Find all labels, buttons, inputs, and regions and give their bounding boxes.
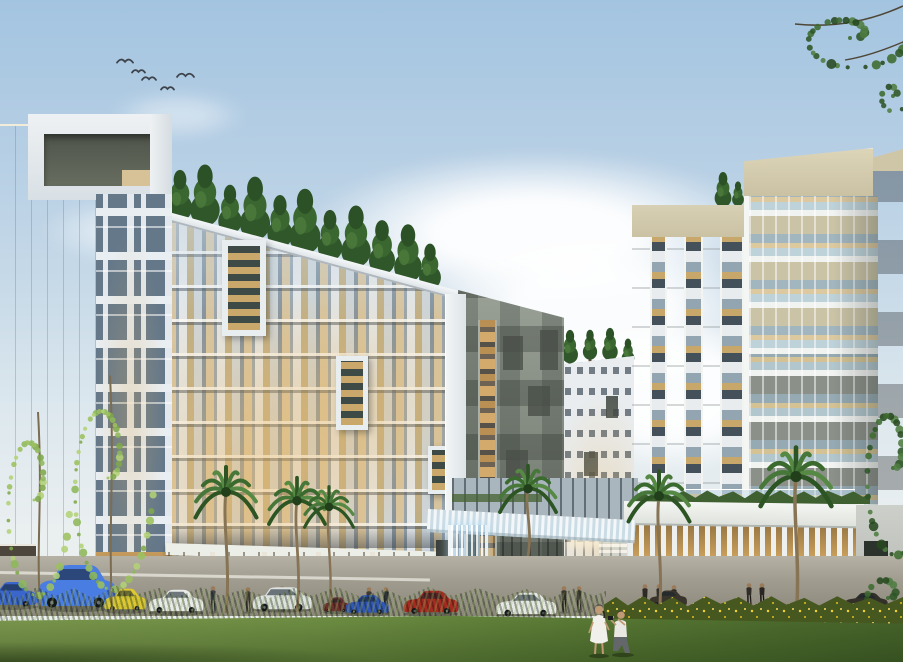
window-strip: [650, 237, 667, 510]
branch: [795, 6, 903, 25]
bird: [132, 70, 145, 72]
bird: [177, 74, 194, 77]
architectural-rendering: [0, 0, 903, 662]
branch-foliage: [806, 17, 903, 70]
bird: [161, 87, 174, 89]
bird: [142, 77, 156, 80]
podium-planter: [452, 494, 542, 502]
window-warm-glow: [96, 194, 172, 560]
dark-panel: [503, 336, 523, 370]
window-strip: [684, 237, 703, 510]
crown-lit-soffit: [122, 170, 152, 186]
branch: [845, 42, 903, 60]
facade-glow: [168, 216, 464, 560]
rooftop-conifer: [562, 330, 578, 366]
rooftop-conifer: [583, 330, 597, 362]
facade-frame-box: [222, 240, 266, 336]
corner-shade: [749, 196, 878, 354]
right-tower-ribbon-windows-upper: [744, 196, 878, 354]
rooftop-conifer: [602, 328, 618, 363]
bird: [117, 60, 133, 63]
facade-frame-box: [336, 356, 368, 430]
dark-panel: [528, 386, 550, 416]
main-building-facade: [168, 216, 464, 560]
branch-foliage: [879, 84, 903, 113]
dark-panel: [540, 330, 558, 370]
right-tower-beige-band: [632, 205, 744, 237]
window-strip: [720, 237, 744, 510]
right-tower-parapet: [744, 148, 873, 199]
left-tower-window-grid: [96, 194, 172, 560]
